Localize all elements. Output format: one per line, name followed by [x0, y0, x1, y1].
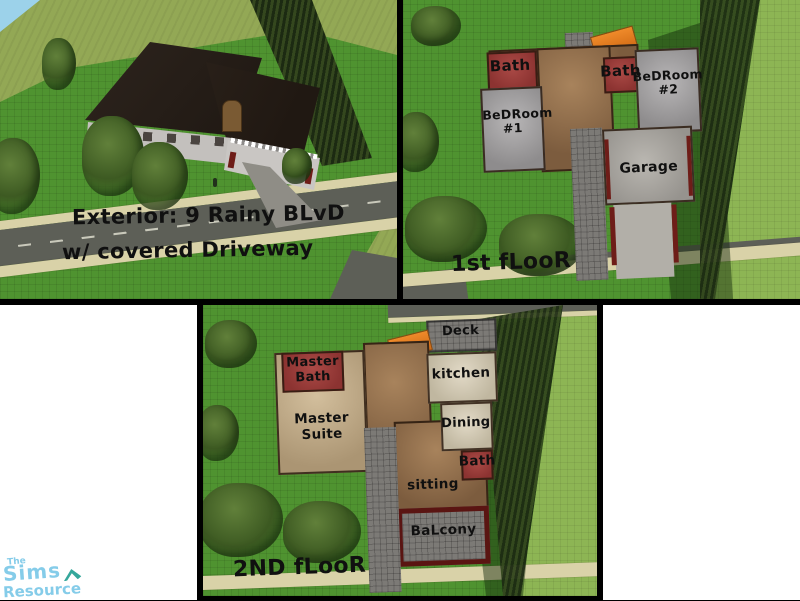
floorplan-second: Master Bath Master Suite Deck kitchen Di…: [271, 333, 514, 586]
front-door: [222, 100, 242, 132]
screenshot-collage: { "panels": { "exterior": { "caption_lin…: [0, 0, 800, 600]
label-bath2: Bath: [457, 453, 498, 470]
logo-resource: Resource: [3, 579, 94, 601]
tree: [411, 6, 461, 46]
panel-exterior: Exterior: 9 Rainy BLvD w/ covered Drivew…: [0, 0, 397, 299]
label-dining: Dining: [438, 415, 494, 432]
label-bedroom1: BeDRoom #1: [482, 106, 543, 137]
exterior-caption-line2: w/ covered Driveway: [62, 236, 314, 265]
floorplan-first: Bath BeDRoom #1 Bath BeDRoom #2 Garage: [478, 23, 709, 282]
front-walk: [570, 128, 609, 281]
label-kitchen: kitchen: [424, 365, 498, 383]
driveway: [613, 203, 674, 279]
front-walk: [364, 427, 402, 593]
label-deck: Deck: [428, 323, 492, 340]
sims-resource-watermark: The Sims Resource: [3, 554, 93, 599]
first-floor-label: 1st fLooR: [451, 248, 572, 277]
exterior-caption-line1: Exterior: 9 Rainy BLvD: [72, 201, 345, 230]
tree: [203, 405, 239, 461]
label-sitting: sitting: [398, 476, 468, 494]
tree: [403, 112, 439, 172]
panel-second-floor: Master Bath Master Suite Deck kitchen Di…: [203, 305, 597, 596]
tree: [203, 483, 283, 557]
tree: [205, 320, 257, 368]
white-area-bottom-right: [603, 305, 800, 600]
label-bath-upper: Bath: [483, 56, 538, 76]
white-area-bottom-left: The Sims Resource: [0, 305, 197, 600]
label-bedroom2: BeDRoom #2: [631, 67, 704, 99]
panel-first-floor: Bath BeDRoom #1 Bath BeDRoom #2 Garage 1…: [403, 0, 800, 299]
label-garage: Garage: [609, 158, 688, 177]
sim-figure: [213, 178, 217, 187]
label-master-bath: Master Bath: [283, 355, 342, 387]
second-floor-label: 2ND fLooR: [233, 553, 367, 583]
label-master-suite: Master Suite: [281, 410, 362, 444]
label-balcony: BaLcony: [401, 522, 485, 540]
